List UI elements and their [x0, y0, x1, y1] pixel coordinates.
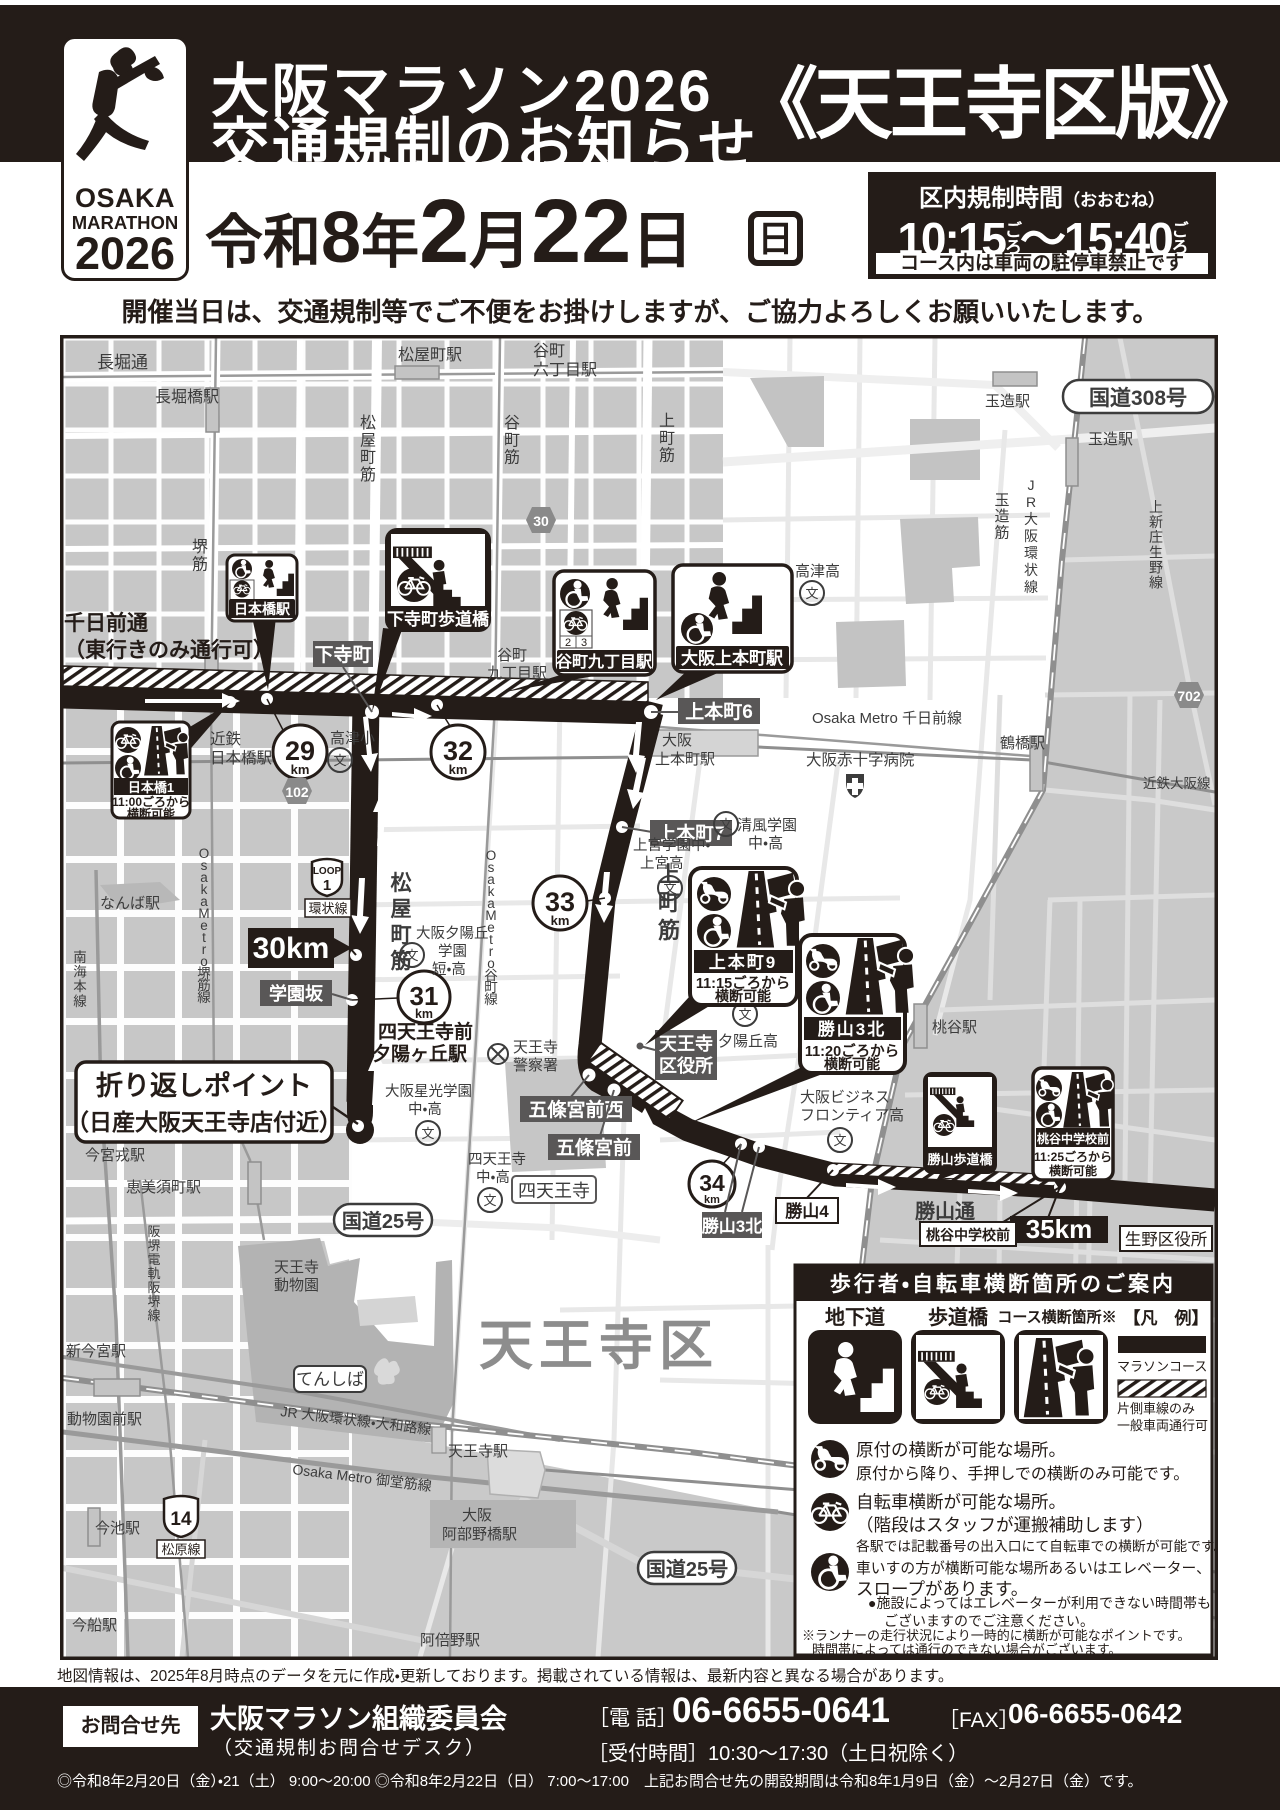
svg-text:マラソンコース: マラソンコース: [1117, 1359, 1207, 1374]
svg-text:勝山通: 勝山通: [915, 1199, 976, 1223]
svg-text:片側車線のみ: 片側車線のみ: [1117, 1401, 1195, 1416]
svg-text:OSAKA: OSAKA: [75, 183, 175, 213]
svg-text:学園坂: 学園坂: [269, 983, 324, 1004]
svg-text:km: km: [449, 762, 468, 777]
svg-text:玉造筋: 玉造筋: [994, 492, 1009, 541]
svg-text:大阪ビジネス: 大阪ビジネス: [800, 1089, 890, 1106]
svg-text:下寺町: 下寺町: [314, 643, 371, 666]
svg-text:35km: 35km: [1026, 1214, 1093, 1244]
svg-text:横断可能: 横断可能: [127, 806, 175, 821]
svg-text:玉造駅: 玉造駅: [1088, 431, 1133, 448]
svg-text:勝山歩道橋: 勝山歩道橋: [927, 1152, 993, 1167]
svg-text:五條宮前: 五條宮前: [556, 1136, 632, 1159]
svg-text:横断可能: 横断可能: [824, 1056, 880, 1072]
svg-text:文: 文: [719, 817, 732, 832]
svg-text:地下道: 地下道: [825, 1305, 885, 1329]
svg-text:勝山3北: 勝山3北: [702, 1216, 762, 1236]
svg-text:上本町9: 上本町9: [709, 952, 777, 972]
svg-text:ございますのでご注意ください。: ございますのでご注意ください。: [884, 1613, 1094, 1629]
svg-text:警察署: 警察署: [513, 1057, 558, 1074]
svg-text:阪堺電軌阪堺線: 阪堺電軌阪堺線: [147, 1224, 160, 1323]
svg-text:（日産大阪天王寺店付近）: （日産大阪天王寺店付近）: [66, 1109, 342, 1135]
svg-text:km: km: [291, 762, 310, 777]
svg-text:谷町筋: 谷町筋: [504, 414, 520, 467]
svg-text:中・高: 中・高: [408, 1101, 442, 1118]
svg-text:高津小: 高津小: [330, 730, 375, 747]
svg-text:【凡 例】: 【凡 例】: [1124, 1308, 1209, 1328]
svg-text:大阪上本町駅: 大阪上本町駅: [681, 648, 784, 668]
svg-text:松原線: 松原線: [161, 1542, 200, 1557]
svg-text:フロンティア高: フロンティア高: [800, 1107, 904, 1124]
svg-text:コース横断箇所※: コース横断箇所※: [997, 1308, 1116, 1326]
svg-text:新今宮駅: 新今宮駅: [66, 1343, 126, 1360]
svg-text:折り返しポイント: 折り返しポイント: [96, 1071, 312, 1101]
svg-text:動物園前駅: 動物園前駅: [67, 1411, 142, 1428]
svg-text:松屋町駅: 松屋町駅: [398, 346, 462, 364]
svg-text:今宮戎駅: 今宮戎駅: [85, 1147, 145, 1164]
svg-text:天王寺: 天王寺: [274, 1259, 319, 1276]
svg-text:（東行きのみ通行可）: （東行きのみ通行可）: [64, 638, 274, 662]
svg-text:km: km: [704, 1194, 720, 1206]
svg-text:上町筋: 上町筋: [659, 412, 675, 465]
svg-text:14: 14: [170, 1509, 192, 1530]
svg-text:上町筋: 上町筋: [657, 862, 680, 943]
svg-text:大阪: 大阪: [462, 1507, 492, 1524]
svg-text:横断可能: 横断可能: [715, 988, 771, 1004]
svg-text:日本橋1: 日本橋1: [128, 780, 174, 795]
svg-text:近鉄大阪線: 近鉄大阪線: [1143, 776, 1211, 791]
svg-text:日本橋駅: 日本橋駅: [234, 601, 291, 617]
svg-text:今船駅: 今船駅: [72, 1617, 117, 1634]
svg-text:谷町: 谷町: [497, 647, 527, 664]
svg-text:歩行者・自転車横断箇所のご案内: 歩行者・自転車横断箇所のご案内: [830, 1272, 1176, 1296]
svg-text:環状線: 環状線: [308, 901, 347, 916]
svg-text:四天王寺: 四天王寺: [518, 1181, 590, 1201]
svg-text:横断可能: 横断可能: [1049, 1163, 1097, 1178]
svg-text:てんしば: てんしば: [296, 1370, 364, 1389]
svg-text:勝山4: 勝山4: [785, 1201, 829, 1221]
svg-text:千日前通: 千日前通: [64, 611, 149, 635]
svg-text:原付から降り、手押しでの横断のみ可能です。: 原付から降り、手押しでの横断のみ可能です。: [856, 1465, 1189, 1483]
svg-text:九丁目駅: 九丁目駅: [487, 665, 547, 682]
svg-text:五條宮前西: 五條宮前西: [528, 1098, 623, 1121]
svg-text:桃谷中学校前: 桃谷中学校前: [926, 1227, 1010, 1243]
svg-text:下寺町歩道橋: 下寺町歩道橋: [387, 609, 490, 629]
svg-text:文: 文: [833, 1133, 846, 1148]
svg-text:自転車横断が可能な場所。: 自転車横断が可能な場所。: [856, 1492, 1066, 1512]
svg-text:30km: 30km: [253, 932, 330, 965]
svg-text:近鉄: 近鉄: [210, 730, 242, 748]
svg-text:（階段はスタッフが運搬補助します）: （階段はスタッフが運搬補助します）: [856, 1515, 1154, 1535]
svg-text:長堀橋駅: 長堀橋駅: [155, 388, 219, 406]
svg-text:国道308号: 国道308号: [1089, 386, 1187, 410]
svg-text:なんば駅: なんば駅: [100, 895, 160, 912]
svg-text:天王寺: 天王寺: [659, 1034, 713, 1054]
svg-text:谷町: 谷町: [533, 342, 565, 360]
svg-text:谷町九丁目駅: 谷町九丁目駅: [556, 653, 653, 671]
svg-text:上本町6: 上本町6: [685, 700, 753, 723]
svg-text:四天王寺: 四天王寺: [468, 1151, 526, 1168]
svg-text:阿部野橋駅: 阿部野橋駅: [442, 1526, 517, 1543]
svg-text:勝山3北: 勝山3北: [818, 1019, 886, 1039]
svg-text:夕陽丘高: 夕陽丘高: [718, 1033, 778, 1050]
svg-text:長堀通: 長堀通: [97, 353, 148, 372]
svg-text:702: 702: [1177, 688, 1201, 704]
svg-text:上本町駅: 上本町駅: [655, 751, 715, 768]
svg-text:短・高: 短・高: [432, 961, 466, 978]
svg-text:南海本線: 南海本線: [73, 950, 87, 1009]
svg-text:各駅では記載番号の出入口にて自転車での横断が可能です。: 各駅では記載番号の出入口にて自転車での横断が可能です。: [856, 1538, 1218, 1554]
svg-text:文: 文: [483, 1193, 496, 1208]
svg-text:文: 文: [421, 1126, 434, 1141]
svg-text:文: 文: [333, 753, 346, 768]
svg-text:中・高: 中・高: [748, 835, 783, 852]
svg-text:3: 3: [581, 637, 587, 649]
svg-text:日本橋駅: 日本橋駅: [210, 749, 273, 767]
svg-text:国道25号: 国道25号: [342, 1209, 424, 1233]
svg-text:34: 34: [699, 1170, 725, 1196]
svg-text:阿倍野駅: 阿倍野駅: [420, 1632, 480, 1649]
svg-text:上新庄生野線: 上新庄生野線: [1149, 499, 1163, 591]
svg-text:11:25ごろから: 11:25ごろから: [1034, 1149, 1112, 1164]
svg-text:区役所: 区役所: [659, 1055, 713, 1076]
svg-text:堺筋: 堺筋: [192, 538, 208, 573]
svg-text:Osaka Metro 千日前線: Osaka Metro 千日前線: [812, 710, 962, 727]
svg-text:文: 文: [805, 586, 818, 601]
svg-text:生野区役所: 生野区役所: [1125, 1230, 1208, 1249]
svg-text:歩道橋: 歩道橋: [928, 1305, 989, 1329]
svg-text:※ランナーの走行状況により一時的に横断が可能なポイントです。: ※ランナーの走行状況により一時的に横断が可能なポイントです。: [802, 1628, 1190, 1643]
svg-text:大阪星光学園: 大阪星光学園: [385, 1083, 472, 1100]
svg-text:中・高: 中・高: [476, 1169, 510, 1186]
svg-text:松屋町筋: 松屋町筋: [360, 414, 376, 484]
svg-text:高津高: 高津高: [795, 563, 840, 580]
svg-text:夕陽ヶ丘駅: 夕陽ヶ丘駅: [372, 1042, 468, 1065]
svg-text:四天王寺前: 四天王寺前: [378, 1020, 473, 1043]
svg-text:102: 102: [285, 784, 309, 800]
svg-text:桃谷中学校前: 桃谷中学校前: [1037, 1131, 1109, 1146]
svg-text:時間帯によっては通行のできない場合がございます。: 時間帯によっては通行のできない場合がございます。: [812, 1642, 1121, 1657]
svg-text:●施設によってはエレベーターが利用できない時間帯も: ●施設によってはエレベーターが利用できない時間帯も: [868, 1595, 1211, 1611]
svg-text:玉造駅: 玉造駅: [985, 393, 1030, 410]
svg-text:大阪赤十字病院: 大阪赤十字病院: [806, 751, 915, 769]
svg-text:恵美須町駅: 恵美須町駅: [126, 1179, 201, 1196]
svg-text:動物園: 動物園: [274, 1277, 319, 1294]
svg-text:文: 文: [738, 1007, 751, 1022]
svg-text:国道25号: 国道25号: [646, 1557, 728, 1581]
svg-text:鶴橋駅: 鶴橋駅: [1000, 735, 1045, 752]
svg-text:今池駅: 今池駅: [95, 1520, 140, 1537]
svg-text:km: km: [551, 913, 570, 928]
svg-text:JR大阪環状線: JR大阪環状線: [1024, 477, 1038, 595]
svg-text:天王寺: 天王寺: [513, 1039, 558, 1056]
svg-text:大阪夕陽丘: 大阪夕陽丘: [416, 925, 489, 942]
svg-text:天王寺駅: 天王寺駅: [448, 1443, 508, 1460]
svg-text:30: 30: [533, 513, 549, 529]
svg-text:車いすの方が横断可能な場所あるいはエレベーター、: 車いすの方が横断可能な場所あるいはエレベーター、: [856, 1560, 1211, 1577]
svg-text:km: km: [415, 1007, 433, 1021]
svg-text:1: 1: [323, 877, 331, 894]
svg-text:清風学園: 清風学園: [737, 817, 797, 834]
svg-text:六丁目駅: 六丁目駅: [533, 361, 597, 379]
svg-text:桃谷駅: 桃谷駅: [932, 1019, 977, 1036]
svg-text:天王寺区: 天王寺区: [479, 1316, 719, 1376]
svg-text:学園: 学園: [438, 943, 467, 960]
svg-text:2: 2: [565, 637, 571, 649]
svg-text:上宮学園中・: 上宮学園中・: [633, 837, 710, 854]
svg-text:2026: 2026: [75, 228, 175, 279]
svg-text:原付の横断が可能な場所。: 原付の横断が可能な場所。: [856, 1440, 1066, 1460]
svg-text:大阪: 大阪: [662, 732, 692, 749]
svg-text:LOOP: LOOP: [313, 866, 342, 877]
svg-text:一般車両通行可: 一般車両通行可: [1117, 1418, 1208, 1433]
